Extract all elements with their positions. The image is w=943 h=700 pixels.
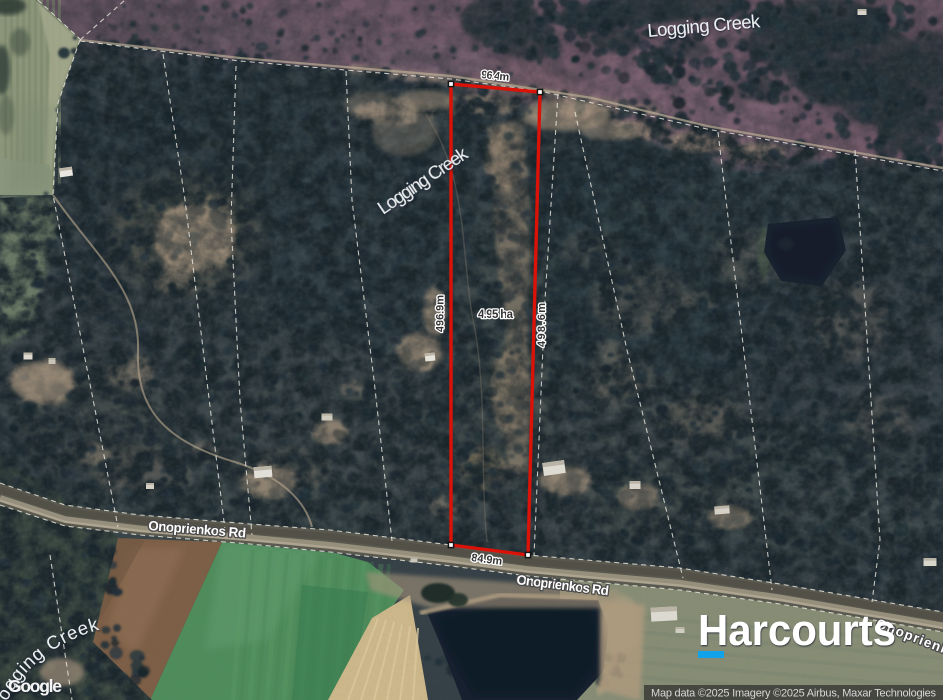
- svg-text:Harcourts: Harcourts: [698, 606, 896, 655]
- svg-text:Map data ©2025 Imagery ©2025 A: Map data ©2025 Imagery ©2025 Airbus, Max…: [651, 688, 937, 700]
- svg-text:496.9m: 496.9m: [435, 295, 447, 332]
- svg-text:498.6m: 498.6m: [536, 303, 548, 347]
- svg-text:Google: Google: [8, 676, 62, 696]
- svg-text:4.95 ha: 4.95 ha: [478, 309, 514, 321]
